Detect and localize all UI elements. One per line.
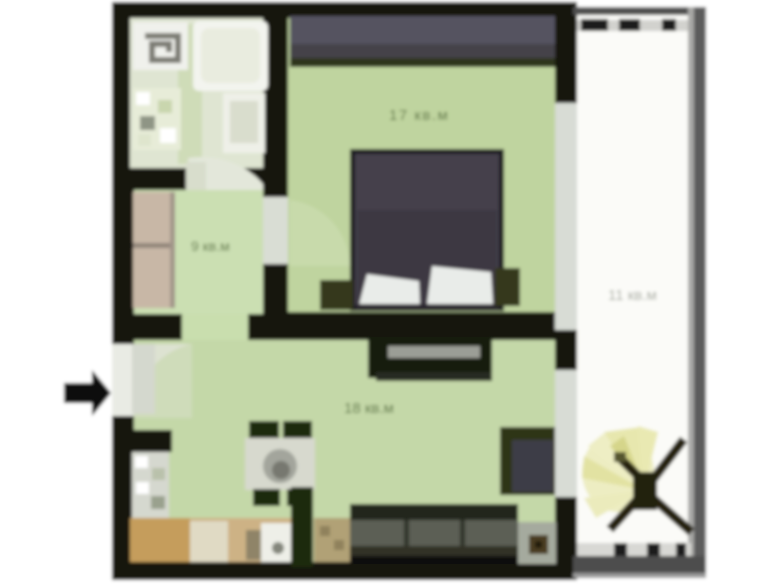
svg-text:9 кв.м: 9 кв.м	[191, 238, 230, 254]
svg-text:17 кв.м: 17 кв.м	[389, 107, 449, 124]
svg-text:11 кв.м: 11 кв.м	[608, 287, 657, 304]
svg-text:18 кв.м: 18 кв.м	[344, 400, 394, 417]
